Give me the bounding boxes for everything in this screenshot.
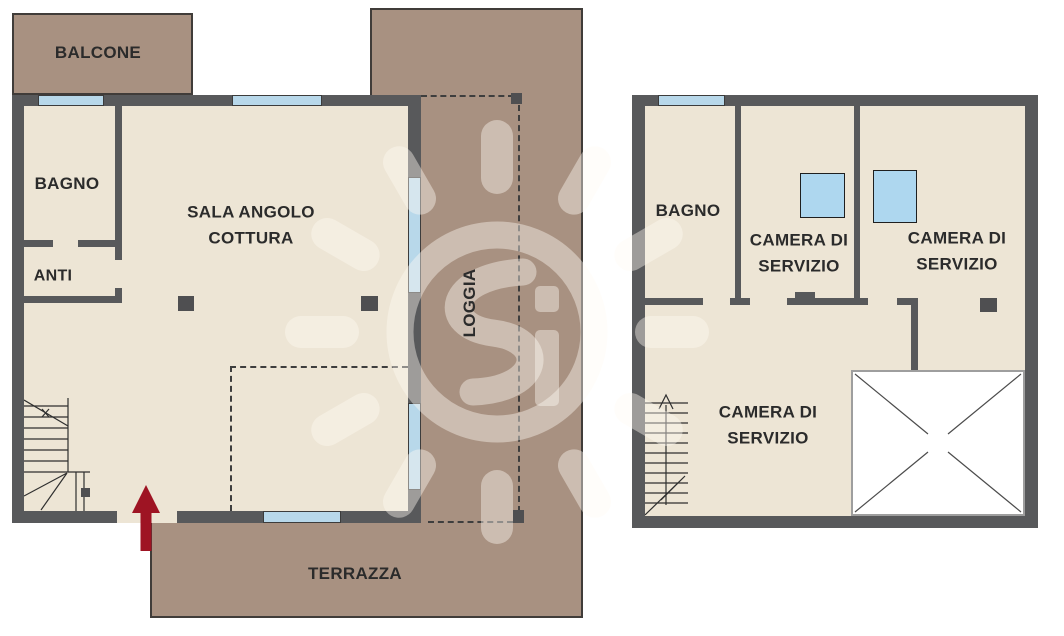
staircase-left-plan: [24, 398, 90, 511]
skylight-camera2: [873, 170, 917, 223]
partition-bagno-camera1: [735, 106, 741, 298]
partition-corridor-b: [730, 298, 750, 305]
dashed-line-loggia-top: [421, 95, 514, 97]
void-opening: [851, 370, 1025, 516]
pillar-sala-left: [178, 296, 194, 311]
window-top-sala: [232, 95, 322, 106]
pillar-loggia-bottom: [513, 510, 524, 523]
floor-plan-canvas: BALCONE BAGNO ANTI SALA ANGOLO COTTURA L…: [0, 0, 1064, 636]
pillar-camera2: [980, 298, 997, 312]
pillar-sala-right: [361, 296, 378, 311]
room-label-balcone: BALCONE: [55, 40, 141, 66]
room-label-camera-servizio-3: CAMERA DI SERVIZIO: [719, 400, 817, 453]
dashed-line-loggia-right: [518, 95, 520, 522]
partition-bagno-sala: [115, 106, 122, 260]
room-label-anti: ANTI: [34, 265, 73, 290]
room-label-bagno-left: BAGNO: [35, 171, 100, 197]
partition-camera1-camera2: [854, 106, 860, 298]
window-right-upper: [408, 177, 421, 293]
partition-door-stub: [795, 292, 815, 299]
partition-corridor-c: [787, 298, 868, 305]
entrance-arrow-icon: [131, 485, 161, 553]
window-right-lower: [408, 403, 421, 490]
skylight-camera1: [800, 173, 845, 218]
room-label-camera-servizio-1: CAMERA DI SERVIZIO: [750, 228, 848, 281]
room-label-loggia: LOGGIA: [457, 269, 483, 338]
loggia-area: [421, 95, 583, 523]
window-top-bagno: [38, 95, 104, 106]
dashed-line-loggia-bottom: [428, 521, 513, 523]
room-label-sala: SALA ANGOLO COTTURA: [187, 200, 315, 253]
window-top-bagno-right: [658, 95, 725, 106]
pillar-loggia-top: [511, 93, 522, 104]
partition-corridor-a: [645, 298, 703, 305]
partition-bagno-bottom-right: [78, 240, 122, 247]
void-cross-icon: [853, 372, 1023, 514]
room-label-bagno-right: BAGNO: [656, 198, 721, 224]
dashed-line-sala-horizontal: [230, 366, 408, 368]
terrace-upper-area: [370, 8, 583, 98]
partition-anti-bottom: [24, 296, 122, 303]
partition-bagno-bottom-left: [24, 240, 53, 247]
room-label-terrazza: TERRAZZA: [308, 561, 402, 587]
staircase-right-plan: [645, 393, 688, 516]
room-label-camera-servizio-2: CAMERA DI SERVIZIO: [908, 226, 1006, 279]
dashed-line-sala-vertical: [230, 366, 232, 511]
partition-void-return: [911, 298, 918, 372]
window-bottom-sala: [263, 511, 341, 523]
